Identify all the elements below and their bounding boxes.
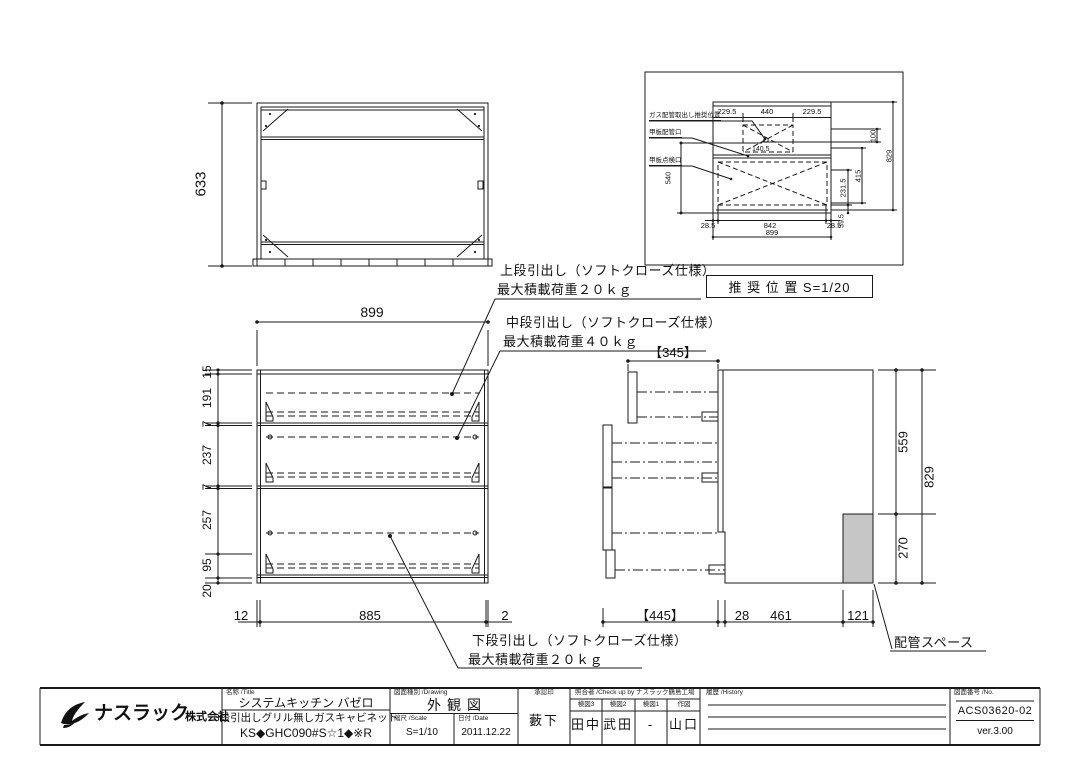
middle-drawer-note-line2: 最大積載荷重４０ｋｇ — [503, 335, 638, 348]
nasluck-logo-icon — [61, 702, 89, 728]
side-bottom-dim-3: 461 — [770, 609, 792, 622]
check-col-label-3: 作図 — [678, 702, 691, 709]
front-left-dim-7: 20 — [201, 584, 213, 597]
check-col-label-1: 検図2 — [610, 702, 627, 709]
date-header: 日付 /Date — [458, 716, 488, 723]
drawing-sheet: 633 ガス配管取出し推奨位置 甲板配管口 甲板点検口 229.5 440 22… — [0, 0, 1080, 763]
detail-pipe-label: 甲板配管口 — [649, 130, 682, 138]
middle-drawer-note-line1: 中段引出し（ソフトクローズ仕様） — [506, 316, 721, 329]
front-view-linework — [205, 322, 512, 627]
lower-drawer-note-line1: 下段引出し（ソフトクローズ仕様） — [472, 634, 687, 647]
product-series: システムキッチン バゼロ — [239, 697, 374, 709]
drawing-type: 外観図 — [427, 698, 487, 712]
number-header: 図面番号 /No. — [954, 690, 994, 697]
side-bottom-dim-4: 121 — [847, 609, 869, 622]
side-top-dim: 【345】 — [649, 346, 697, 359]
detail-dim-140: 140.5 — [752, 146, 770, 153]
side-right-dim-total: 829 — [923, 466, 936, 488]
front-left-dim-5: 257 — [201, 510, 213, 530]
scale-note-box: 推 奨 位 置 S=1/20 — [706, 275, 873, 298]
detail-dim-total: 899 — [766, 229, 779, 237]
detail-dim-bot-right: 28.5 — [827, 222, 842, 230]
date-value: 2011.12.22 — [461, 728, 510, 738]
check-col-label-0: 検図3 — [578, 702, 595, 709]
front-left-dim-2: 7 — [201, 421, 213, 428]
detail-dim-829: 829 — [885, 150, 893, 163]
side-bottom-dim-2: 28 — [735, 609, 749, 622]
front-left-dim-4: 7 — [201, 484, 213, 491]
side-right-dim-lower: 270 — [897, 537, 910, 559]
detail-dim-415: 415 — [854, 170, 862, 183]
check-col-value-2: - — [648, 718, 654, 731]
detail-dim-100: 100 — [869, 130, 877, 143]
company-name: ナスラック — [94, 704, 189, 723]
check-col-value-3: 山口 — [669, 718, 699, 731]
check-col-value-0: 田中 — [571, 718, 601, 731]
piping-space-label: 配管スペース — [894, 636, 973, 649]
drawing-number: ACS03620-02 — [958, 706, 1033, 717]
lower-drawer-note-line2: 最大積載荷重２０ｋｇ — [468, 653, 603, 666]
product-code: KS◆GHC090#S☆1◆※R — [240, 727, 372, 739]
front-bottom-dim-center: 885 — [359, 609, 381, 622]
detail-dim-top-center: 440 — [761, 108, 774, 116]
side-right-dim-upper: 559 — [897, 431, 910, 453]
front-bottom-dim-left: 12 — [234, 609, 248, 622]
side-bottom-dim-1: 【445】 — [636, 609, 684, 622]
detail-dim-540: 540 — [664, 172, 672, 185]
check-col-label-2: 検図1 — [643, 702, 660, 709]
detail-gas-label: ガス配管取出し推奨位置 — [649, 113, 721, 121]
plan-view-dots — [220, 101, 480, 268]
approval-name: 藪下 — [529, 714, 559, 727]
check-col-value-1: 武田 — [603, 718, 633, 731]
detail-dim-top-left: 229.5 — [718, 108, 737, 116]
front-left-dim-6: 95 — [201, 558, 213, 571]
detail-dim-bot-left: 28.5 — [701, 222, 716, 230]
scale-header: 縮尺 /Scale — [394, 716, 427, 723]
front-left-dim-3: 237 — [201, 445, 213, 465]
detail-dim-231: 231.5 — [839, 179, 847, 198]
scale-value: S=1/10 — [406, 728, 438, 738]
plan-view-linework — [208, 103, 492, 266]
annotation-leader-dots — [388, 392, 459, 538]
history-header: 履歴 /History — [706, 690, 743, 697]
upper-drawer-note-line1: 上段引出し（ソフトクローズ仕様） — [500, 264, 715, 277]
side-view-dots — [601, 359, 924, 624]
detail-dim-top-right: 229.5 — [803, 108, 822, 116]
detail-inspect-label: 甲板点検口 — [649, 158, 682, 166]
approval-header: 承認印 — [534, 690, 554, 697]
upper-drawer-note-line2: 最大積載荷重２０ｋｇ — [497, 283, 632, 296]
check-header: 照合者 /Check up by ナスラック鶴島工場 — [575, 690, 695, 697]
plan-depth-dim: 633 — [194, 171, 209, 196]
front-left-dim-0: 15 — [201, 365, 213, 378]
drawing-header: 図面種別 /Drawing — [394, 690, 447, 697]
front-width-dim: 899 — [360, 305, 383, 319]
scale-note-text: 推 奨 位 置 S=1/20 — [728, 277, 850, 296]
front-bottom-dim-right: 2 — [501, 609, 508, 622]
front-left-dim-1: 191 — [201, 388, 213, 408]
drawing-version: ver.3.00 — [977, 727, 1013, 737]
product-desc: 3段引出しグリル無しガスキャビネット — [214, 713, 398, 724]
